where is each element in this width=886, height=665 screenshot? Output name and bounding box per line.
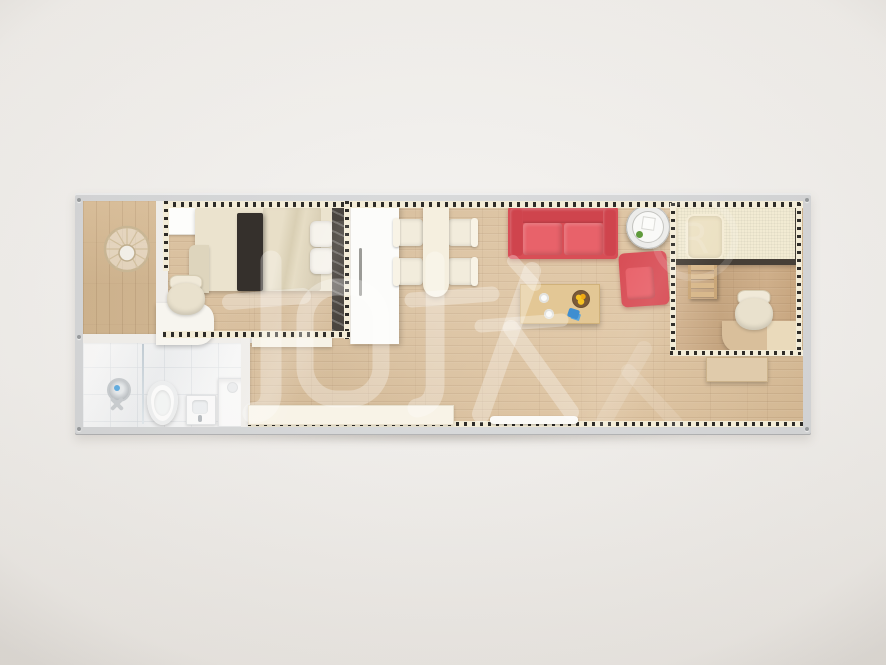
bedroom-right-wall bbox=[344, 201, 350, 339]
bedroom-left-wall bbox=[163, 201, 169, 271]
dining-chair bbox=[396, 258, 423, 285]
study-right-wall bbox=[796, 203, 802, 352]
mini-plant bbox=[636, 231, 643, 238]
armchair-cushion bbox=[625, 266, 655, 300]
screw-icon bbox=[805, 427, 809, 431]
top-wall bbox=[165, 201, 803, 208]
toilet-seat bbox=[154, 390, 171, 416]
pillow bbox=[310, 248, 334, 274]
wardrobe-handle bbox=[359, 248, 362, 296]
study-bottom-wall bbox=[670, 350, 803, 356]
bedroom-bottom-wall bbox=[163, 331, 350, 338]
sofa-arm bbox=[510, 208, 523, 256]
fruit-bowl bbox=[572, 290, 590, 308]
nightstand bbox=[168, 204, 198, 235]
sofa-arm bbox=[603, 208, 616, 256]
study-left-wall bbox=[670, 203, 676, 356]
sideboard bbox=[248, 405, 454, 425]
dining-table bbox=[423, 206, 449, 297]
basin-tap bbox=[198, 415, 202, 422]
container-frame: R bbox=[75, 193, 811, 435]
bed-runner bbox=[237, 213, 263, 291]
armchair bbox=[618, 250, 670, 307]
window-sill bbox=[490, 416, 578, 424]
floor-area: R bbox=[83, 201, 803, 427]
bedroom-desk-chair bbox=[167, 275, 205, 315]
blue-object bbox=[567, 308, 580, 320]
shower-glass-screen bbox=[142, 344, 144, 424]
plate bbox=[544, 309, 554, 319]
coffee-table bbox=[520, 284, 600, 324]
single-bed bbox=[676, 206, 800, 265]
bathroom bbox=[83, 340, 243, 427]
dining-chair bbox=[396, 219, 423, 246]
sofa bbox=[508, 206, 618, 259]
chair-seat bbox=[735, 298, 773, 330]
sofa-cushion bbox=[523, 223, 562, 255]
toilet bbox=[147, 381, 178, 425]
plate bbox=[539, 293, 549, 303]
shower-head-center bbox=[114, 385, 120, 391]
double-bed bbox=[195, 207, 339, 291]
study-desk-chair bbox=[735, 290, 773, 330]
chair-seat bbox=[167, 283, 205, 315]
sofa-back bbox=[511, 208, 615, 223]
screw-icon bbox=[77, 335, 81, 339]
wash-basin bbox=[186, 395, 216, 425]
wardrobe bbox=[350, 204, 399, 344]
watermark-text: 柜族 bbox=[0, 0, 1, 1]
washer-knob bbox=[227, 382, 238, 393]
step-ladder bbox=[688, 265, 717, 299]
round-floor-decor bbox=[102, 224, 152, 274]
dining-chair bbox=[448, 258, 475, 285]
mirror-panel bbox=[332, 207, 344, 331]
low-cabinet bbox=[706, 357, 768, 382]
round-side-table bbox=[626, 205, 670, 249]
basin-bowl bbox=[192, 400, 208, 414]
screw-icon bbox=[77, 198, 81, 202]
sofa-cushion bbox=[564, 223, 603, 255]
screw-icon bbox=[805, 198, 809, 202]
pillow bbox=[310, 221, 334, 247]
pillow bbox=[686, 214, 724, 260]
dining-chair bbox=[448, 219, 475, 246]
entry-porch bbox=[83, 201, 159, 341]
screw-icon bbox=[77, 427, 81, 431]
floor-plan-scene: R 柜族 bbox=[0, 0, 886, 665]
table-card bbox=[641, 216, 656, 231]
